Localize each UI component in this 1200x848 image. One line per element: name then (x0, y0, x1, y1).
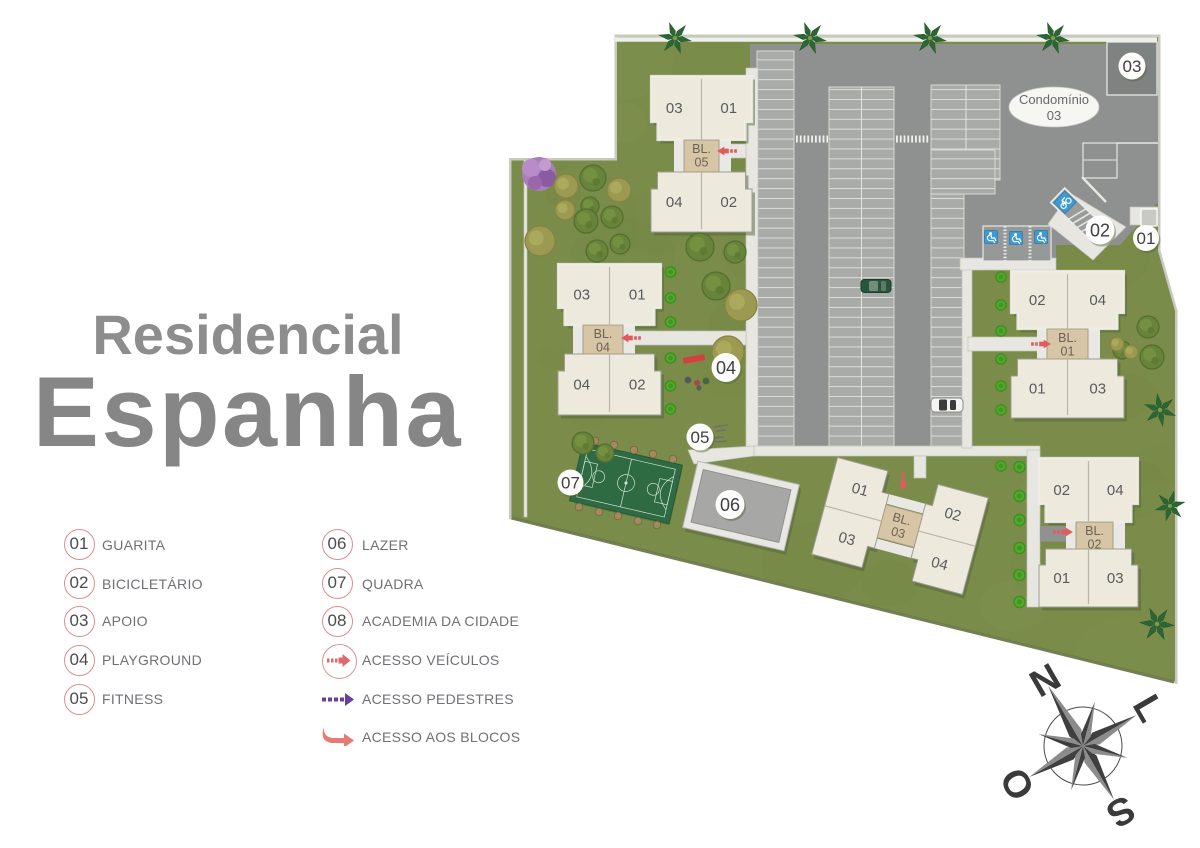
svg-text:03: 03 (1047, 108, 1061, 123)
svg-text:03: 03 (666, 100, 683, 117)
svg-text:03: 03 (573, 287, 590, 304)
svg-text:04: 04 (716, 358, 736, 378)
svg-text:03: 03 (1107, 570, 1124, 587)
svg-text:01: 01 (1061, 345, 1075, 359)
svg-text:07: 07 (561, 474, 580, 493)
svg-text:BL.: BL. (594, 327, 613, 341)
svg-text:01: 01 (1029, 381, 1046, 398)
svg-text:04: 04 (573, 377, 590, 394)
svg-text:S: S (1099, 786, 1142, 835)
svg-text:02: 02 (1053, 482, 1070, 499)
svg-text:05: 05 (695, 156, 709, 170)
svg-text:02: 02 (720, 194, 737, 211)
svg-text:01: 01 (1137, 229, 1156, 248)
svg-text:01: 01 (720, 100, 737, 117)
svg-text:06: 06 (720, 495, 740, 515)
svg-text:BL.: BL. (692, 142, 711, 156)
svg-text:BL.: BL. (1058, 331, 1077, 345)
svg-text:Condomínio: Condomínio (1019, 92, 1089, 107)
svg-text:04: 04 (666, 194, 683, 211)
svg-text:01: 01 (1053, 570, 1070, 587)
svg-text:N: N (1023, 656, 1068, 706)
svg-text:BL.: BL. (1085, 524, 1104, 538)
svg-text:01: 01 (629, 287, 646, 304)
svg-text:05: 05 (691, 428, 710, 447)
svg-text:02: 02 (1029, 292, 1046, 309)
svg-text:04: 04 (1089, 292, 1106, 309)
svg-text:04: 04 (1107, 482, 1124, 499)
svg-text:03: 03 (1123, 57, 1142, 76)
svg-text:02: 02 (1090, 220, 1110, 240)
svg-text:03: 03 (1089, 381, 1106, 398)
svg-text:02: 02 (629, 377, 646, 394)
svg-text:O: O (992, 760, 1043, 807)
svg-text:04: 04 (596, 341, 610, 355)
svg-text:L: L (1124, 688, 1172, 729)
svg-text:02: 02 (1088, 538, 1102, 552)
